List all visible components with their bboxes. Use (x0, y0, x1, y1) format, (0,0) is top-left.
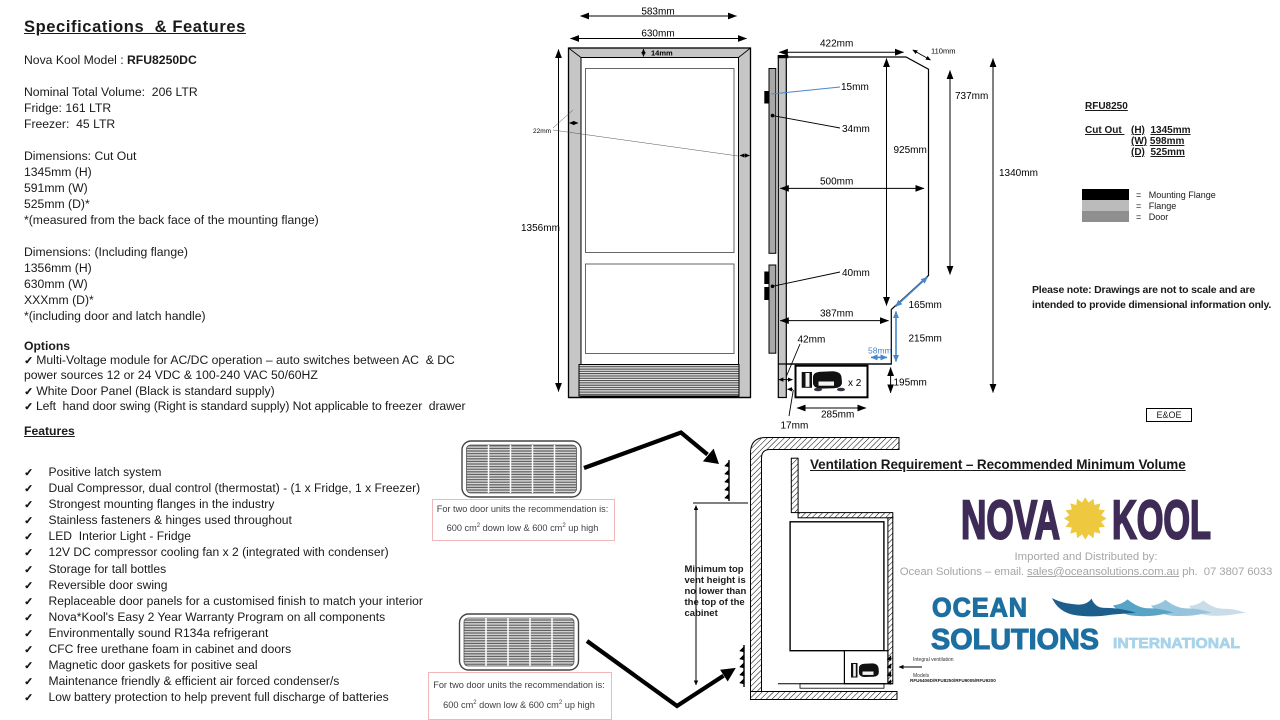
svg-text:215mm: 215mm (909, 334, 942, 345)
svg-text:422mm: 422mm (820, 39, 853, 50)
svg-text:737mm: 737mm (955, 91, 988, 102)
svg-text:42mm: 42mm (798, 335, 826, 346)
svg-text:the top of the: the top of the (685, 597, 745, 608)
svg-text:KOOL: KOOL (1112, 489, 1211, 551)
svg-text:no lower than: no lower than (685, 586, 747, 597)
svg-text:1340mm: 1340mm (999, 168, 1038, 179)
svg-text:1356mm: 1356mm (521, 223, 560, 234)
svg-text:110mm: 110mm (931, 47, 955, 56)
svg-text:58mm: 58mm (868, 346, 892, 356)
svg-text:vent height is: vent height is (685, 575, 746, 586)
svg-text:500mm: 500mm (820, 177, 853, 188)
svg-text:583mm: 583mm (641, 7, 674, 18)
svg-text:40mm: 40mm (842, 268, 870, 279)
svg-text:14mm: 14mm (651, 49, 673, 58)
svg-text:925mm: 925mm (894, 145, 927, 156)
svg-text:15mm: 15mm (841, 82, 869, 93)
svg-text:165mm: 165mm (909, 300, 942, 311)
svg-text:INTERNATIONAL: INTERNATIONAL (1113, 636, 1240, 652)
svg-text:NOVA: NOVA (961, 489, 1060, 551)
svg-text:17mm: 17mm (781, 421, 809, 432)
svg-text:x 2: x 2 (848, 378, 862, 389)
svg-text:Minimum top: Minimum top (685, 564, 744, 575)
svg-text:22mm: 22mm (533, 128, 551, 135)
svg-text:285mm: 285mm (821, 410, 854, 421)
svg-text:34mm: 34mm (842, 124, 870, 135)
svg-text:cabinet: cabinet (685, 608, 719, 619)
svg-text:630mm: 630mm (641, 29, 674, 40)
svg-text:OCEAN: OCEAN (932, 593, 1028, 623)
svg-text:387mm: 387mm (820, 309, 853, 320)
svg-text:195mm: 195mm (894, 378, 927, 389)
svg-text:SOLUTIONS: SOLUTIONS (931, 624, 1099, 656)
